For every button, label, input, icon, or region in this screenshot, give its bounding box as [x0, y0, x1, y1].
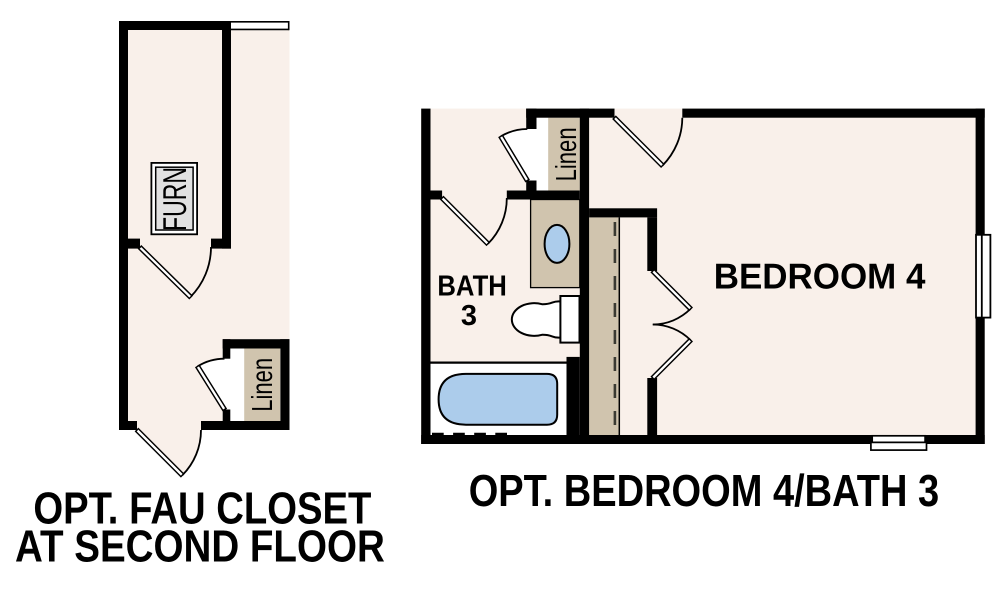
svg-text:Linen: Linen [551, 127, 583, 181]
svg-text:Linen: Linen [247, 358, 279, 412]
svg-text:OPT. BEDROOM 4/BATH 3: OPT. BEDROOM 4/BATH 3 [469, 465, 940, 516]
svg-text:BATH: BATH [437, 270, 506, 302]
svg-text:AT SECOND FLOOR: AT SECOND FLOOR [15, 521, 385, 572]
svg-text:FURN: FURN [156, 167, 193, 231]
svg-text:3: 3 [461, 300, 477, 332]
svg-text:BEDROOM 4: BEDROOM 4 [714, 255, 926, 296]
